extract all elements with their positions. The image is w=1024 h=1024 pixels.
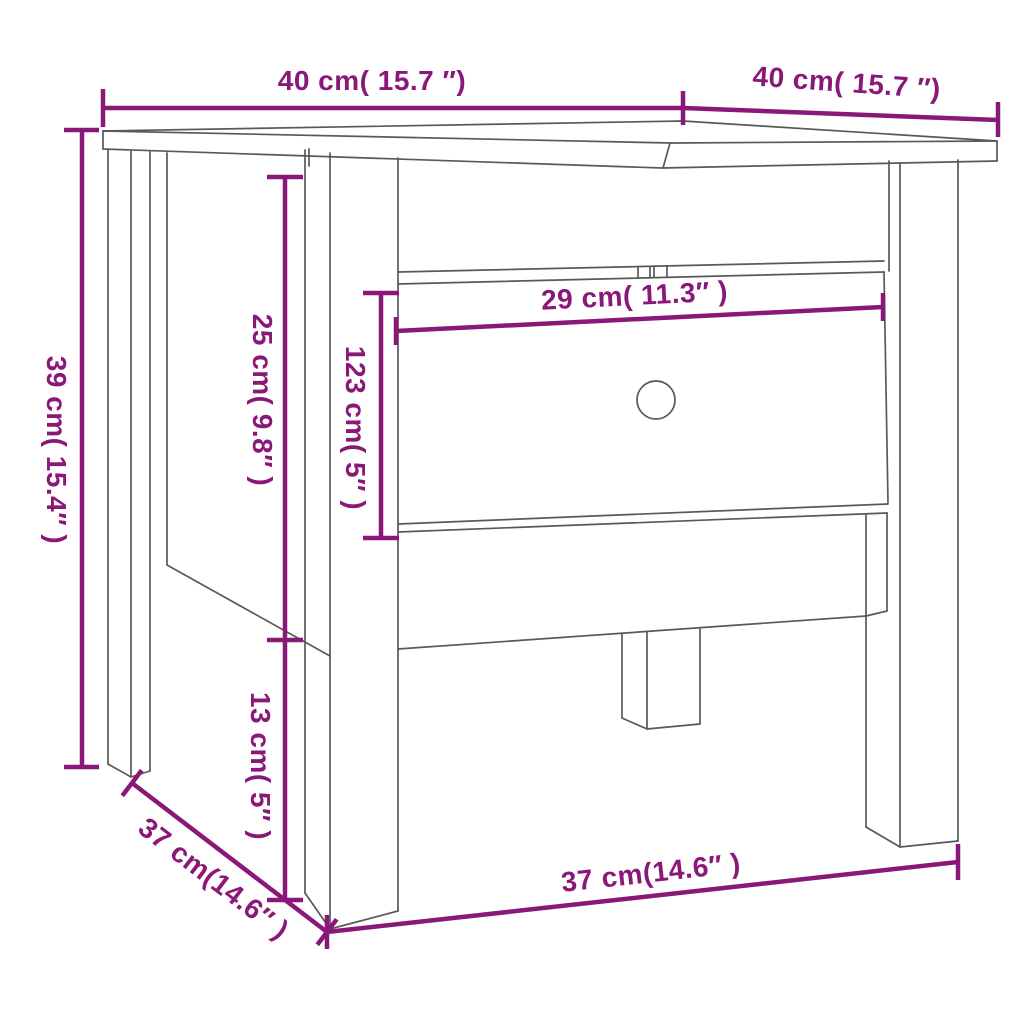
dim-upper-height-label: 25 cm( 9.8″ ) xyxy=(247,314,278,486)
dim-total-height-label: 39 cm( 15.4″ ) xyxy=(41,356,72,545)
rear-left-leg xyxy=(108,150,150,777)
upper-rail xyxy=(398,161,889,284)
dim-tabletop-width-label: 40 cm( 15.7 ″) xyxy=(278,65,467,96)
dim-upper-height: 25 cm( 9.8″ ) xyxy=(247,177,303,640)
drawer-knob-hole xyxy=(637,381,675,419)
dim-tabletop-depth-label: 40 cm( 15.7 ″) xyxy=(752,60,942,104)
rear-right-leg xyxy=(622,629,700,729)
dim-tabletop-width: 40 cm( 15.7 ″) xyxy=(103,65,683,127)
dim-tabletop-depth: 40 cm( 15.7 ″) xyxy=(683,60,998,137)
dim-drawer-width-label: 29 cm( 11.3″ ) xyxy=(540,275,728,315)
tabletop xyxy=(103,121,997,168)
dimension-diagram: 40 cm( 15.7 ″) 40 cm( 15.7 ″) 39 cm( 15.… xyxy=(0,0,1024,1024)
dimension-diagram-page: 40 cm( 15.7 ″) 40 cm( 15.7 ″) 39 cm( 15.… xyxy=(0,0,1024,1024)
dim-leg-height: 13 cm( 5″ ) xyxy=(245,640,303,900)
dim-leg-height-label: 13 cm( 5″ ) xyxy=(245,692,276,840)
dim-drawer-height-label: 123 cm( 5″ ) xyxy=(340,346,371,510)
dim-drawer-width: 29 cm( 11.3″ ) xyxy=(396,275,883,345)
furniture-drawing xyxy=(103,121,997,929)
dim-drawer-height: 123 cm( 5″ ) xyxy=(340,293,399,538)
dim-total-height: 39 cm( 15.4″ ) xyxy=(41,130,99,767)
dim-base-width: 37 cm(14.6″ ) xyxy=(327,844,958,949)
bottom-rail xyxy=(398,513,887,649)
